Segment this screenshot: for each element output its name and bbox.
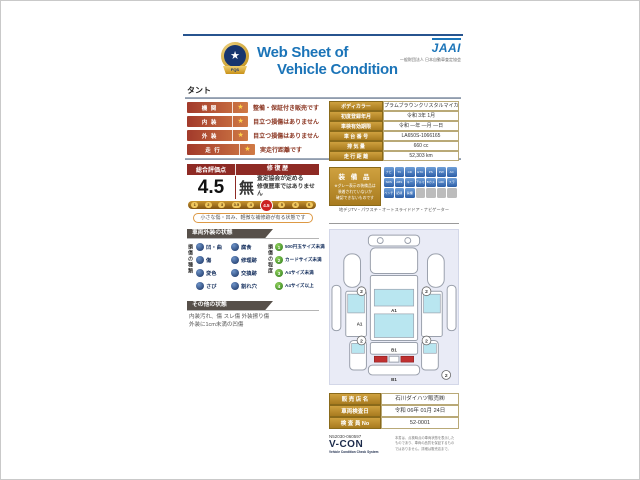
damage-marker: 2	[425, 289, 428, 295]
scale-badge: 2	[205, 202, 212, 208]
left-door-glass	[348, 294, 365, 313]
sheet-title-line2: Vehicle Condition	[277, 61, 398, 78]
equipment-icon: ナビ	[384, 167, 394, 177]
equipment-icon: キー	[405, 178, 415, 188]
equipment-icon: HID	[437, 178, 447, 188]
info-value: 52,303 km	[383, 151, 459, 161]
rating-bar: 機 関 ★	[187, 102, 248, 113]
rating-row: 機 関 ★ 整備・保証付き販売です	[187, 102, 319, 113]
right-rocker	[447, 285, 456, 330]
info-value: 660 cc	[383, 141, 459, 151]
badge-ribbon: FQS	[223, 66, 247, 74]
rating-label: 外 装	[187, 132, 232, 140]
repair-note-line1: 査定協会が定める	[257, 176, 303, 182]
rear-bumper	[368, 365, 419, 375]
scale-badge: 1	[191, 202, 198, 208]
damage-type-label: 凹・曲	[206, 243, 222, 251]
table-row: 車 台 番 号 LA650S-1066165	[329, 131, 459, 141]
star-icon: ★	[232, 130, 248, 141]
table-row: ボディカラー プラムブラウンクリスタルマイカ	[329, 101, 459, 111]
rating-label: 機 関	[187, 104, 232, 112]
roof-rear-glass	[374, 314, 413, 338]
damage-level-item: 4 A4サイズ以上	[275, 281, 314, 291]
equipment-icon-empty	[447, 188, 457, 198]
discoloration-icon	[196, 269, 204, 277]
banner-underline	[187, 238, 319, 239]
damage-level-label: カードサイズ未満	[285, 257, 322, 263]
equipment-icon: Bカメ	[426, 178, 436, 188]
equipment-icon: アルミ	[416, 178, 426, 188]
equipment-title-box: 装 備 品 ※グレー表示の装備品は 装着されていないか 確認できないものです	[329, 167, 381, 206]
car-damage-diagram: 2 2 2 2 A1 A1 B1 B1 2	[329, 229, 459, 385]
sheet-title-line1: Web Sheet of	[257, 44, 348, 61]
rating-label: 走 行	[187, 146, 239, 154]
car-name: タント	[187, 85, 211, 96]
org-block: JAAI 一般財団法人 日本自動車査定協会	[400, 38, 461, 63]
damage-type-item: 傷	[196, 255, 211, 265]
table-row: 初度登録年月 令和 3年 1月	[329, 111, 459, 121]
dealer-table: 販 売 店 名 石川ダイハツ販売㈱ 車両検査日 令和 06年 01月 24日 検…	[329, 393, 459, 429]
dealer-value: 石川ダイハツ販売㈱	[381, 393, 459, 405]
equipment-caption: 地デジTV・パワステ・オートスライドドア・ナビゲーター	[329, 207, 459, 213]
damage-code-roof: A1	[391, 308, 397, 313]
info-value: 令和 3年 1月	[383, 111, 459, 121]
repair-history-value: 無	[239, 177, 254, 198]
headlight-right-icon	[405, 238, 411, 244]
exterior-section-title: 車両外装の状態	[187, 229, 273, 238]
equipment-icon-empty	[416, 188, 426, 198]
damage-marker: 2	[360, 338, 363, 344]
info-value: LA650S-1066165	[383, 131, 459, 141]
scale-bar: 1233.544.556S	[188, 201, 316, 209]
damage-level-item: 3 A4サイズ未満	[275, 268, 314, 278]
damage-type-item: さび	[196, 281, 217, 291]
fine-print-line3: ではありません。詳細は販売店まで。	[395, 447, 461, 452]
equipment-icon: 禁煙	[405, 188, 415, 198]
damage-code-rear-bumper: B1	[391, 377, 397, 382]
table-row: 車検有効期限 令和 ―年 ―月 ―日	[329, 121, 459, 131]
equipment-icon: ベンチ	[384, 188, 394, 198]
damage-type-item: 割れ穴	[231, 281, 257, 291]
right-front-fender	[427, 254, 444, 287]
star-icon: ★	[232, 116, 248, 127]
corrosion-icon	[231, 243, 239, 251]
info-label: 車 台 番 号	[329, 131, 383, 141]
equipment-icon: 記録	[395, 188, 405, 198]
equipment-icon: PW	[437, 167, 447, 177]
equipment-note: ※グレー表示の装備品は 装着されていないか 確認できないものです	[330, 183, 380, 201]
info-value: 令和 ―年 ―月 ―日	[383, 121, 459, 131]
info-label: 排 気 量	[329, 141, 383, 151]
equipment-icon: スラ	[447, 178, 457, 188]
scale-badge-current: 4.5	[261, 200, 272, 211]
table-row: 車両検査日 令和 06年 01月 24日	[329, 405, 459, 417]
scale-note: 小さな傷・凹み、軽微な補修跡が有る状態です	[193, 213, 313, 223]
equipment-icon: SRS	[384, 178, 394, 188]
equipment-icon-empty	[437, 188, 447, 198]
vcon-block: N52030-060597 V-CON Vehicle Condition Ch…	[329, 434, 378, 454]
scale-badge: 3	[218, 202, 225, 208]
damage-level-item: 2 カードサイズ未満	[275, 255, 322, 265]
scale-badge: 5	[278, 202, 285, 208]
info-label: 車検有効期限	[329, 121, 383, 131]
damage-type-label: 傷	[206, 256, 211, 264]
divider	[185, 97, 461, 99]
other-section-title: その他の状態	[187, 301, 273, 310]
equipment-icon-empty	[426, 188, 436, 198]
equipment-icon: TV	[395, 167, 405, 177]
damage-level-label: 500円玉サイズ未満	[285, 244, 325, 250]
damage-type-item: 変色	[196, 268, 217, 278]
overall-score-value: 4.5	[187, 177, 235, 199]
equipment-icon: ABS	[395, 178, 405, 188]
fine-print: 本書は、点検時点の車両状態を表示した ものであり、車両の品質を保証するもの では…	[395, 436, 461, 452]
dealer-label: 車両検査日	[329, 405, 381, 417]
rating-comment: 目立つ損傷はありません	[253, 131, 319, 140]
rating-comment: 目立つ損傷はありません	[253, 117, 319, 126]
damage-type-label: 修理跡	[241, 256, 257, 264]
damage-type-label: 腐食	[241, 243, 252, 251]
damage-code-rear: B1	[391, 347, 397, 352]
divider	[329, 223, 459, 224]
rating-list: 機 関 ★ 整備・保証付き販売です 内 装 ★ 目立つ損傷はありません 外 装 …	[187, 102, 319, 158]
dealer-label: 販 売 店 名	[329, 393, 381, 405]
table-row: 走 行 距 離 52,303 km	[329, 151, 459, 161]
damage-level-item: 1 500円玉サイズ未満	[275, 242, 325, 252]
damage-type-item: 腐食	[231, 242, 252, 252]
damage-marker: 2	[360, 289, 363, 295]
left-rocker	[332, 285, 341, 330]
headlight-left-icon	[377, 238, 383, 244]
replaced-panel-icon	[231, 269, 239, 277]
bottom-rule	[183, 34, 463, 36]
rating-comment: 実走行距離です	[260, 145, 302, 154]
rating-row: 走 行 ★ 実走行距離です	[187, 144, 319, 155]
rust-icon	[196, 282, 204, 290]
other-condition-line1: 内装汚れ、傷 スレ傷 外装擦り傷	[189, 313, 269, 321]
damage-type-label: 変色	[206, 269, 217, 277]
overall-score-label: 総合評価点	[187, 165, 235, 174]
damage-type-item: 凹・曲	[196, 242, 222, 252]
table-row: 排 気 量 660 cc	[329, 141, 459, 151]
damage-level-label: A4サイズ未満	[285, 270, 314, 276]
damage-marker: 2	[425, 338, 428, 344]
rating-row: 内 装 ★ 目立つ損傷はありません	[187, 116, 319, 127]
org-name: 一般財団法人 日本自動車査定協会	[400, 57, 461, 63]
equipment-grid: ナビTVCDETCPSPWACSRSABSキーアルミBカメHIDスラベンチ記録禁…	[384, 167, 461, 198]
repair-mark-icon	[231, 256, 239, 264]
damage-marker: 2	[445, 373, 448, 379]
scale-badge: 6	[292, 202, 299, 208]
repair-history-note: 査定協会が定める 修復歴車ではありません	[257, 176, 319, 199]
rating-comment: 整備・保証付き販売です	[253, 103, 319, 112]
scale-badge: S	[306, 202, 313, 208]
info-value: プラムブラウンクリスタルマイカ	[383, 101, 459, 111]
info-label: 初度登録年月	[329, 111, 383, 121]
damage-level-label: A4サイズ以上	[285, 283, 314, 289]
tail-lamp-right-icon	[401, 356, 414, 362]
equipment-icon: AC	[447, 167, 457, 177]
license-plate	[389, 356, 399, 362]
level-3-icon: 3	[275, 269, 283, 277]
right-door-glass	[424, 294, 441, 313]
damage-type-label: 交換跡	[241, 269, 257, 277]
rating-row: 外 装 ★ 目立つ損傷はありません	[187, 130, 319, 141]
dealer-label: 検 査 員 No	[329, 417, 381, 429]
level-4-icon: 4	[275, 282, 283, 290]
other-condition-text: 内装汚れ、傷 スレ傷 外装擦り傷 外装に1cm未満の凹傷	[189, 313, 269, 330]
tail-lamp-left-icon	[374, 356, 387, 362]
crack-hole-icon	[231, 282, 239, 290]
star-icon: ★	[232, 102, 248, 113]
rating-label: 内 装	[187, 118, 232, 126]
damage-levels-label: 損傷の程度	[267, 244, 274, 294]
damage-types-label: 損傷の種類	[187, 244, 194, 294]
dent-bend-icon	[196, 243, 204, 251]
damage-type-label: 割れ穴	[241, 282, 257, 290]
equipment-note-line2: 装着されていないか	[338, 190, 372, 194]
repair-note-line2: 修復歴車ではありません	[257, 184, 315, 198]
equipment-icon: PS	[426, 167, 436, 177]
overall-score-body: 4.5 無 査定協会が定める 修復歴車ではありません	[187, 176, 319, 199]
scale-badge: 4	[247, 202, 254, 208]
overall-score-header: 総合評価点 修 復 歴	[187, 164, 319, 175]
damage-type-item: 修理跡	[231, 255, 257, 265]
hood-panel	[370, 248, 417, 274]
vehicle-info-table: ボディカラー プラムブラウンクリスタルマイカ 初度登録年月 令和 3年 1月 車…	[329, 101, 459, 161]
rating-bar: 外 装 ★	[187, 130, 248, 141]
star-icon: ★	[224, 45, 246, 67]
repair-history-label: 修 復 歴	[235, 164, 319, 175]
sheet: ★ FQS Web Sheet of Vehicle Condition JAA…	[183, 34, 463, 464]
equipment-title: 装 備 品	[330, 171, 380, 181]
jaai-logo: JAAI	[432, 38, 461, 55]
equipment-note-line3: 確認できないものです	[336, 196, 374, 200]
info-label: 走 行 距 離	[329, 151, 383, 161]
vcon-logo: V-CON	[329, 439, 378, 450]
table-row: 検 査 員 No 52-0001	[329, 417, 459, 429]
vcon-subtitle: Vehicle Condition Check System	[329, 450, 378, 454]
condition-sheet-page: ★ FQS Web Sheet of Vehicle Condition JAA…	[0, 0, 640, 480]
dealer-value: 令和 06年 01月 24日	[381, 405, 459, 417]
rating-bar: 内 装 ★	[187, 116, 248, 127]
star-icon: ★	[239, 144, 255, 155]
banner-underline	[187, 310, 319, 311]
equipment-note-line1: ※グレー表示の装備品は	[334, 184, 375, 188]
damage-type-item: 交換跡	[231, 268, 257, 278]
damage-type-label: さび	[206, 282, 217, 290]
dealer-value: 52-0001	[381, 417, 459, 429]
other-condition-line2: 外装に1cm未満の凹傷	[189, 321, 269, 329]
info-label: ボディカラー	[329, 101, 383, 111]
association-badge: ★ FQS	[221, 42, 253, 74]
equipment-icon: CD	[405, 167, 415, 177]
fine-print-line2: ものであり、車両の品質を保証するもの	[395, 441, 461, 446]
scale-badge: 3.5	[232, 202, 241, 208]
level-2-icon: 2	[275, 256, 283, 264]
front-bumper	[368, 235, 419, 246]
table-row: 販 売 店 名 石川ダイハツ販売㈱	[329, 393, 459, 405]
equipment-icon: ETC	[416, 167, 426, 177]
repair-history: 無 査定協会が定める 修復歴車ではありません	[235, 176, 319, 199]
car-diagram-svg: 2 2 2 2 A1 A1 B1 B1 2	[330, 230, 458, 384]
left-front-fender	[344, 254, 361, 287]
rating-bar: 走 行 ★	[187, 144, 255, 155]
windshield-glass	[374, 289, 413, 306]
scratch-icon	[196, 256, 204, 264]
damage-code-left-door: A1	[357, 322, 363, 327]
level-1-icon: 1	[275, 243, 283, 251]
